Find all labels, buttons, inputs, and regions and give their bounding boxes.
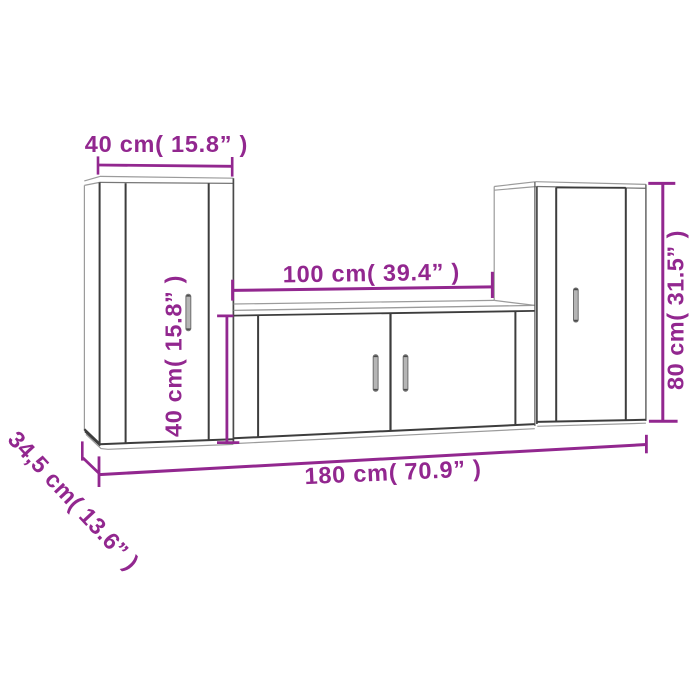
svg-text:100 cm( 39.4” ): 100 cm( 39.4” ) [283, 259, 460, 288]
svg-text:180 cm( 70.9” ): 180 cm( 70.9” ) [304, 455, 481, 489]
svg-text:40 cm( 15.8” ): 40 cm( 15.8” ) [161, 276, 187, 438]
svg-text:80 cm( 31.5” ): 80 cm( 31.5” ) [663, 231, 689, 391]
svg-text:40 cm( 15.8” ): 40 cm( 15.8” ) [85, 131, 248, 157]
